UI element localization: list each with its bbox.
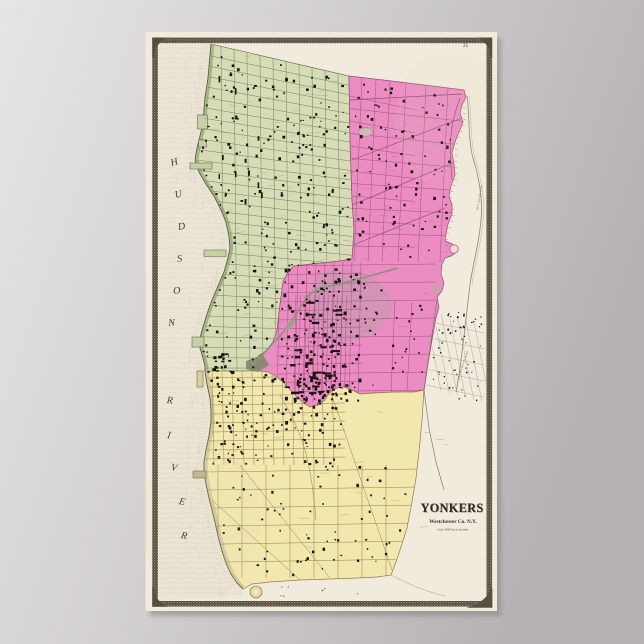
svg-text:R: R — [165, 395, 173, 407]
svg-text:Scale 1600 Feet to the inch.: Scale 1600 Feet to the inch. — [437, 529, 468, 532]
svg-text:Westchester Co. N.Y.: Westchester Co. N.Y. — [429, 519, 477, 525]
svg-text:25: 25 — [463, 44, 469, 49]
svg-text:O: O — [173, 285, 181, 297]
svg-text:YONKERS: YONKERS — [420, 501, 483, 515]
